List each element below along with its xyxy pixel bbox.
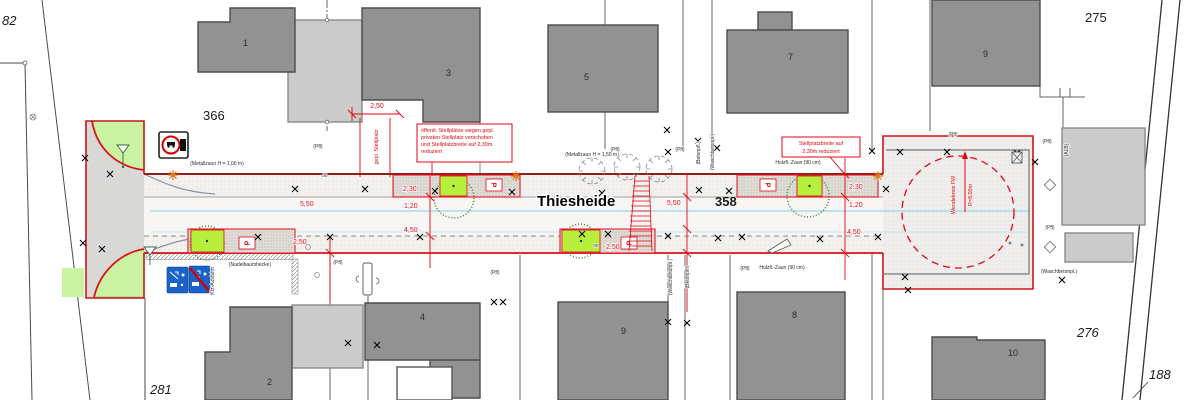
- pfl-label: (Pfl): [333, 260, 343, 266]
- building-1-label: 1: [243, 38, 248, 48]
- pfl-label: (Pfl): [948, 132, 958, 138]
- kfz-ausfahrt-label: Kfz-Ausfahrt: [210, 267, 216, 295]
- pfl-label: (Pfl): [1042, 139, 1052, 145]
- note-reduction: Stellplatzbreite auf 2,30m reduziert: [782, 137, 860, 157]
- metallzaun-west-label: (Metallzaun H = 1,00 m): [190, 161, 244, 167]
- nadelbaumhecke-label: (Nadelbaumhecke): [229, 262, 272, 268]
- building-outline-planned: [397, 367, 452, 400]
- parcel-366: 366: [203, 108, 225, 123]
- pfl-label: (Pfl): [675, 147, 685, 153]
- diamond-marker: [1044, 179, 1055, 190]
- building-9-north: [932, 0, 1040, 86]
- site-plan-canvas: P P P P: [0, 0, 1200, 400]
- garage-annex-south: [292, 305, 363, 368]
- dim-4-50-east: 4,50: [847, 229, 861, 236]
- site-plan-thiesheide: P P P P: [0, 0, 1200, 400]
- dim-5-50-center: 5,50: [667, 200, 681, 207]
- building-3-label: 3: [446, 68, 451, 78]
- building-east-b: [1065, 233, 1133, 262]
- building-5-label: 5: [584, 72, 589, 82]
- gate-icon: [363, 263, 372, 295]
- building-2-label: 2: [267, 377, 272, 387]
- parcel-275: 275: [1085, 10, 1107, 25]
- pfl-label: (Pfl): [1045, 225, 1055, 231]
- note-reduction-line1: Stellplatzbreite auf: [799, 141, 844, 147]
- dim-1-20-west: 1,20: [404, 203, 418, 210]
- dim-4-50-south: 4,50: [404, 227, 418, 234]
- building-4-label: 4: [420, 312, 425, 322]
- building-10-label: 10: [1008, 348, 1018, 358]
- parking-p-icon: P: [764, 183, 771, 188]
- dim-2-50-southwest: 2,50: [293, 239, 307, 246]
- double-circle-marker: oo: [322, 173, 328, 179]
- no-vehicles-sign: [159, 132, 188, 158]
- alb-vertical-label: (ALB): [1064, 143, 1070, 156]
- dim-1-20-east: 1,20: [849, 202, 863, 209]
- double-circle-marker: oo: [593, 243, 599, 249]
- waschbetonpl-vertical-label: (Waschbetonpl.): [710, 134, 716, 171]
- building-7-annex: [758, 12, 792, 30]
- parcel-82: 82: [2, 13, 17, 28]
- parcel-276: 276: [1076, 325, 1099, 340]
- building-7-label: 7: [788, 52, 793, 62]
- building-8-label: 8: [792, 310, 797, 320]
- dim-2-30-east: 2,30: [849, 184, 863, 191]
- wendekreis-label: Wendekreis FW: [951, 175, 957, 214]
- dim-5-50-west: 5,50: [300, 201, 314, 208]
- building-8: [737, 292, 845, 400]
- waschbetonpl-vertical-label: (Waschbetonpl.): [668, 259, 674, 296]
- traffic-calmed-zone-sign: [167, 267, 188, 293]
- pfl-label: (Pfl): [490, 270, 500, 276]
- building-5: [548, 25, 658, 112]
- note-relocation-line3: und Stellplatzbreite auf 2,30m: [421, 142, 493, 148]
- note-relocation: öffentl. Stellplätze wegen gepl. private…: [417, 124, 512, 162]
- holzzaun-north-label: Holzfl.-Zaun (90 cm): [775, 160, 821, 166]
- gepl-stellplatz-label: gepl. Stellplatz: [374, 129, 380, 164]
- garage-annex-north: [288, 20, 362, 122]
- parcel-358: 358: [715, 194, 737, 209]
- parking-p-icon: P: [245, 240, 252, 245]
- building-east-a: [1062, 128, 1145, 225]
- dim-2-50-center: 2,50: [606, 244, 620, 251]
- betonpfl-vertical-label: (Betonpfl.): [696, 141, 702, 164]
- betonpfl-vertical-label: (Betonpfl.): [685, 265, 691, 288]
- pfl-label: (Pfl): [313, 144, 323, 150]
- traffic-calmed-zone-signs: [167, 266, 210, 293]
- parcel-188: 188: [1149, 367, 1171, 382]
- parcel-281: 281: [149, 382, 172, 397]
- pfl-label: (Pfl): [740, 266, 750, 272]
- holzzaun-south-label: Holzfl.-Zaun (90 cm): [759, 265, 805, 271]
- dim-2-50-top: 2,50: [370, 103, 384, 110]
- building-9s-label: 9: [621, 326, 626, 336]
- waschbetonpl-label: (Waschbetonpl.): [1041, 269, 1078, 275]
- wendekreis-radius-label: R=8,00m: [968, 183, 974, 206]
- note-relocation-line4: reduziert: [421, 149, 442, 155]
- street-surface: [144, 136, 1033, 289]
- building-7: [727, 30, 848, 113]
- building-9n-label: 9: [983, 49, 988, 59]
- building-10: [932, 337, 1045, 400]
- building-2: [205, 307, 292, 400]
- diamond-marker: [1044, 241, 1055, 252]
- dim-2-30-west: 2,30: [403, 186, 417, 193]
- street-name-label: Thiesheide: [537, 193, 615, 210]
- pfl-label: (Pfl): [610, 147, 620, 153]
- note-reduction-line2: 2,30m reduziert: [802, 149, 840, 155]
- building-9-south: [558, 302, 668, 400]
- note-relocation-line2: privaten Stellplatz verschoben: [421, 135, 493, 141]
- parking-p-icon: P: [490, 183, 497, 188]
- note-relocation-line1: öffentl. Stellplätze wegen gepl.: [421, 128, 494, 134]
